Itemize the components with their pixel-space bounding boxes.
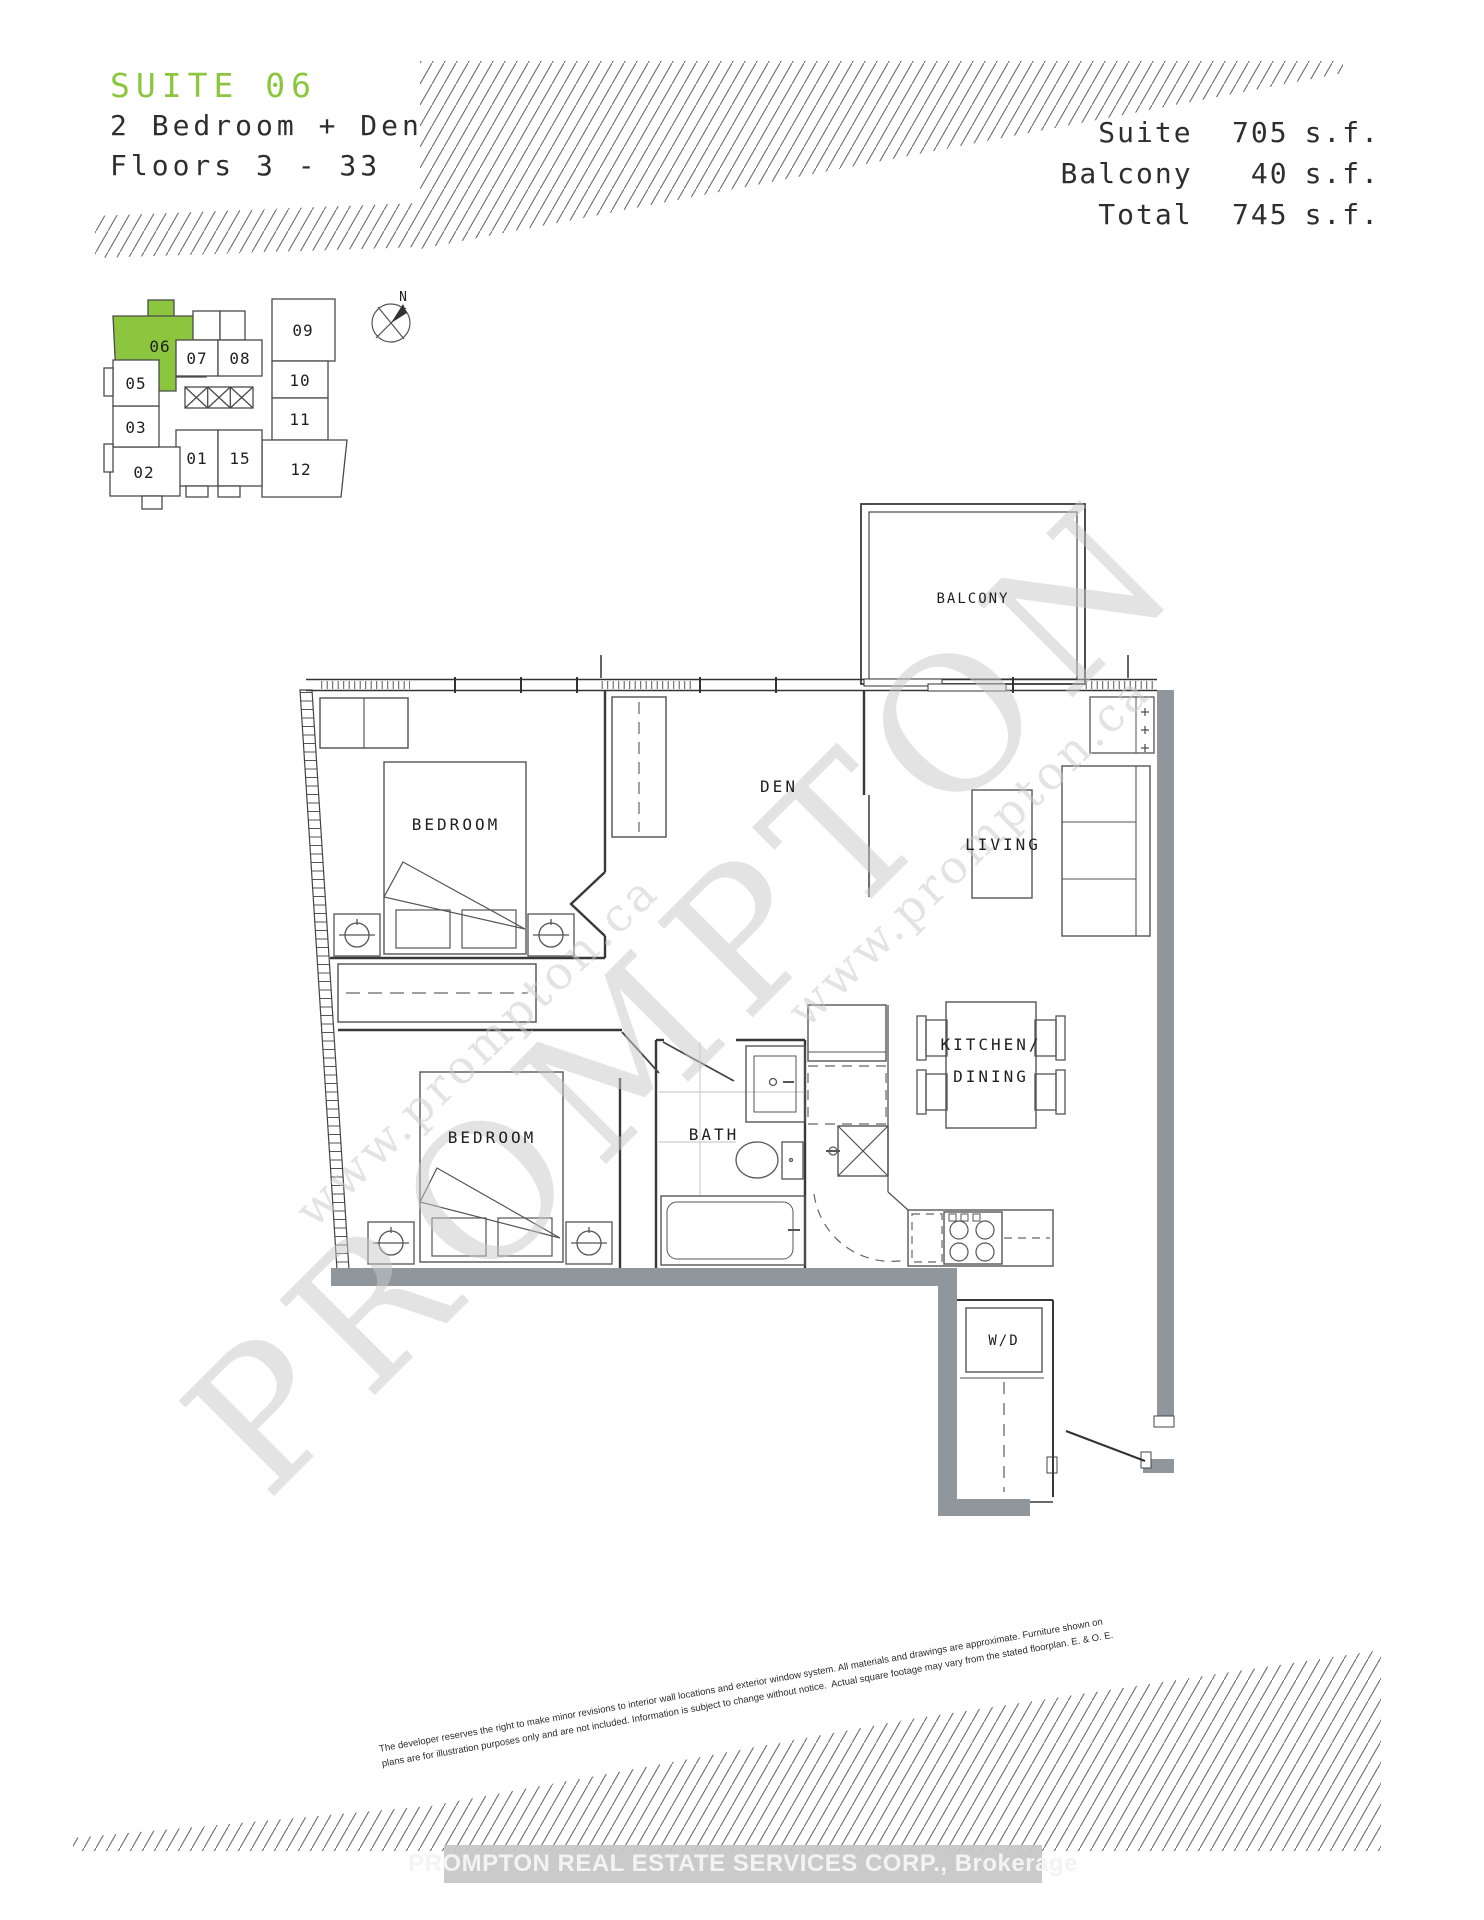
room-label-kitchen: KITCHEN/ (940, 1035, 1041, 1054)
room-label-den: DEN (760, 777, 798, 796)
keyplan-suite-10: 10 (289, 371, 310, 390)
area-row-suite: Suite 705 s.f. (896, 112, 1380, 153)
area-label: Balcony (1061, 153, 1193, 194)
area-row-total: Total 745 s.f. (896, 194, 1380, 235)
area-row-balcony: Balcony 40 s.f. (896, 153, 1380, 194)
area-unit: s.f. (1305, 112, 1380, 153)
room-label-bedroom-1: BEDROOM (412, 815, 500, 834)
area-unit: s.f. (1305, 194, 1380, 235)
room-label-bath: BATH (689, 1125, 740, 1144)
keyplan-suite-05: 05 (125, 374, 146, 393)
area-label: Suite (1098, 112, 1192, 153)
kitchen-sink (826, 1126, 888, 1176)
compass-icon (372, 304, 410, 342)
keyplan-suite-06: 06 (149, 337, 170, 356)
suite-type: 2 Bedroom + Den (110, 106, 423, 146)
header: SUITE 06 2 Bedroom + Den Floors 3 - 33 (110, 66, 423, 186)
room-label-balcony: BALCONY (936, 591, 1009, 607)
keyplan-suite-11: 11 (289, 410, 310, 429)
dining-set (917, 1002, 1065, 1128)
keyplan-suite-01: 01 (186, 449, 207, 468)
room-label-living: LIVING (965, 835, 1041, 854)
bathtub (661, 1196, 805, 1265)
keyplan-suite-07: 07 (186, 349, 207, 368)
floorplan-drawing: 06 07 08 09 10 11 12 01 15 02 03 05 N (0, 0, 1484, 1920)
keyplan-elevator-core (185, 387, 253, 408)
room-label-wd: W/D (988, 1333, 1019, 1349)
area-value: 705 (1193, 112, 1289, 153)
area-label: Total (1098, 194, 1192, 235)
nightstands-1 (334, 914, 574, 956)
watermark-primary: PROMPTON (145, 455, 1224, 1534)
keyplan-suite-02: 02 (133, 463, 154, 482)
suite-floors: Floors 3 - 33 (110, 146, 423, 186)
sofa (1062, 766, 1150, 936)
room-label-bedroom-2: BEDROOM (448, 1128, 536, 1147)
cooktop (944, 1212, 1002, 1264)
compass-north-label: N (399, 290, 407, 305)
keyplan-suite-08: 08 (229, 349, 250, 368)
toilet (736, 1142, 803, 1179)
footer-band: PROMPTON REAL ESTATE SERVICES CORP., Bro… (444, 1845, 1042, 1883)
keyplan-suite-09: 09 (292, 321, 313, 340)
area-value: 745 (1193, 194, 1289, 235)
area-unit: s.f. (1305, 153, 1380, 194)
keyplan-suite-03: 03 (125, 418, 146, 437)
brokerage-name: PROMPTON REAL ESTATE SERVICES CORP., Bro… (408, 1850, 1078, 1878)
room-label-dining: DINING (953, 1067, 1029, 1086)
watermark: PROMPTON www.prompton.ca www.prompton.ca (145, 455, 1224, 1534)
keyplan-suite-15: 15 (229, 449, 250, 468)
suite-title: SUITE 06 (110, 66, 423, 106)
floorplan-page: 06 07 08 09 10 11 12 01 15 02 03 05 N (0, 0, 1484, 1920)
bed-1 (384, 762, 526, 954)
area-summary: Suite 705 s.f. Balcony 40 s.f. Total 745… (896, 112, 1380, 235)
area-value: 40 (1193, 153, 1289, 194)
keyplan-suite-12: 12 (290, 460, 311, 479)
